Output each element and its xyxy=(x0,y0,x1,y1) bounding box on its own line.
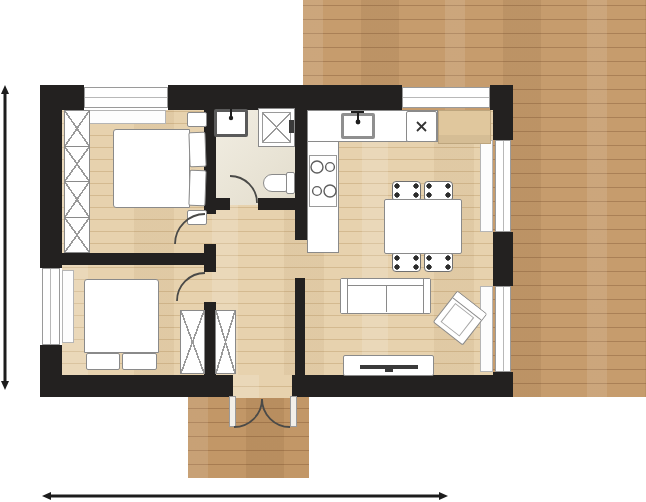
dimension-line-left xyxy=(1,85,9,390)
dimension-line-bottom xyxy=(42,492,448,500)
tap-symbols xyxy=(229,109,364,124)
plan-symbol-overlay xyxy=(0,0,646,502)
hob-burners xyxy=(311,161,336,197)
entrance-door-arc-right xyxy=(262,399,290,427)
floor-plan-canvas xyxy=(0,0,646,502)
bedroom2-door-arc xyxy=(177,273,205,301)
appliance-x-mark xyxy=(417,122,426,131)
door-arcs xyxy=(175,176,290,427)
entrance-door-arc-left xyxy=(234,399,262,427)
bedroom1-door-arc xyxy=(175,214,205,244)
bathroom-door-arc xyxy=(230,176,257,203)
